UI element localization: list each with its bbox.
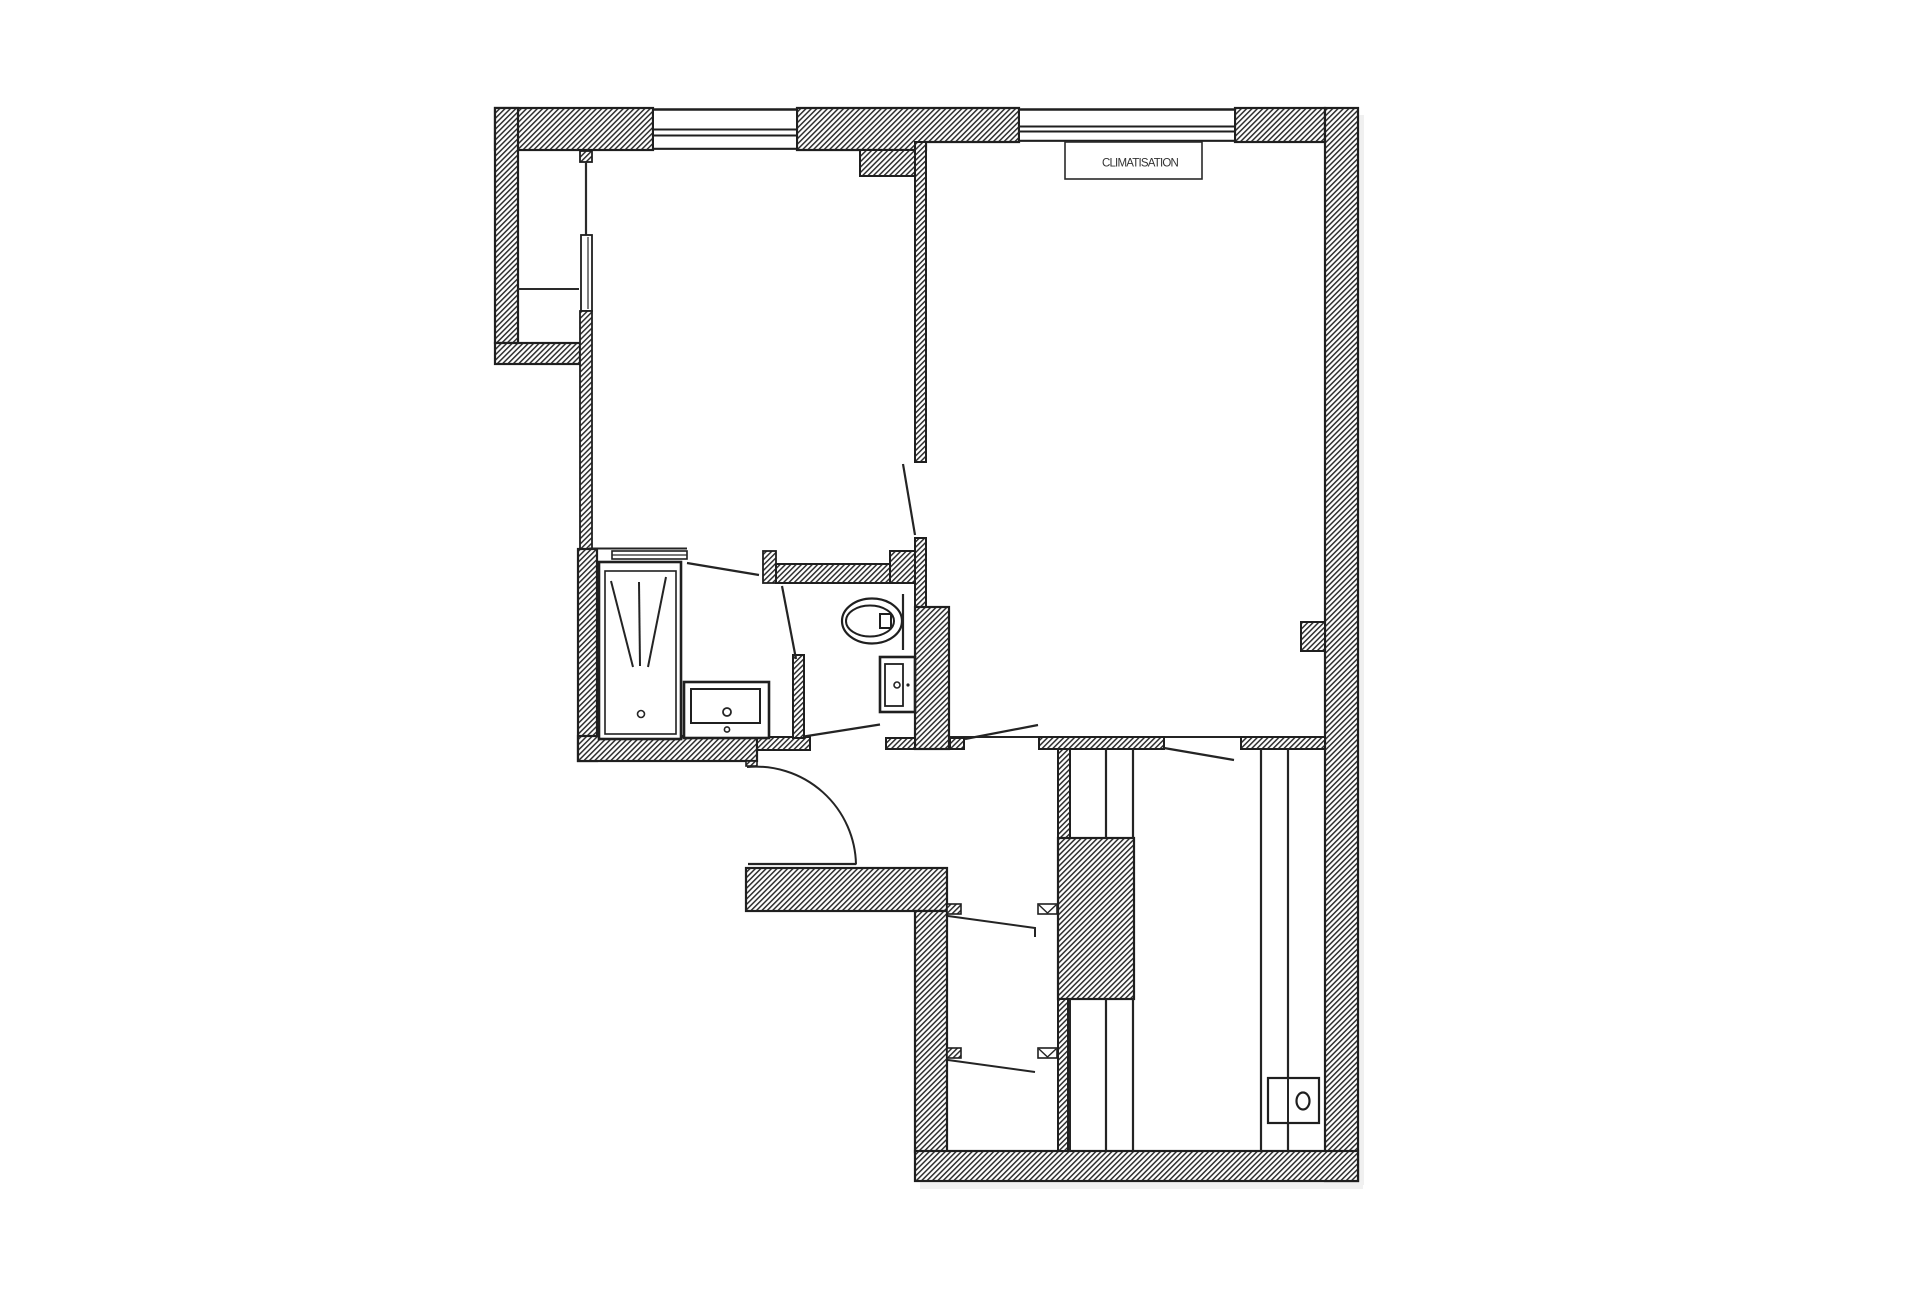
svg-text:CLIMATISATION: CLIMATISATION [1102, 158, 1179, 170]
